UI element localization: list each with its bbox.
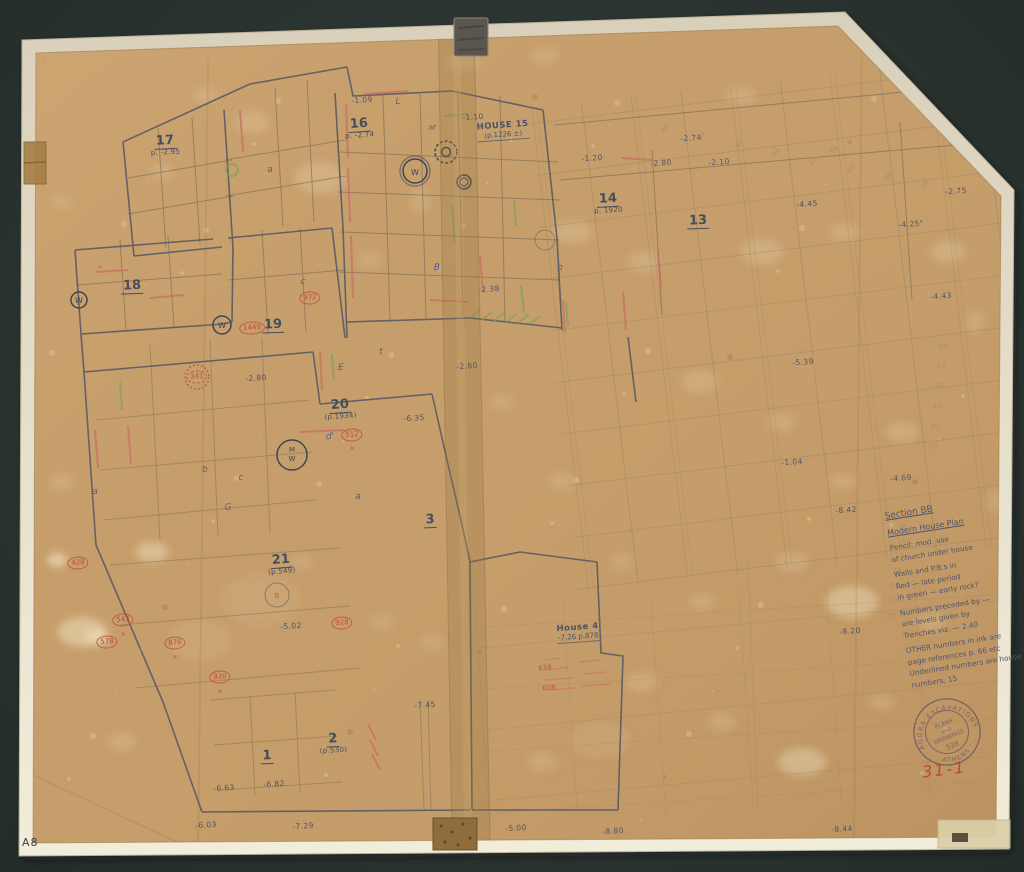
svg-text:W: W: [218, 321, 226, 330]
sheet-corner-label: A8: [22, 836, 39, 849]
svg-text:W: W: [289, 455, 296, 463]
svg-text:W: W: [75, 296, 83, 305]
tape-piece-bottom-right: [938, 820, 1010, 848]
photographed-plan-backdrop: W W M W W B: [0, 0, 1024, 872]
svg-text:M: M: [289, 446, 295, 454]
svg-text:B: B: [275, 592, 280, 600]
tape-piece-bottom-cork: [433, 818, 477, 850]
svg-text:W: W: [411, 168, 419, 177]
plan-sheet-svg: W W M W W B: [0, 0, 1024, 872]
tape-piece-left-edge: [24, 142, 46, 184]
tape-piece-top: [454, 18, 488, 56]
